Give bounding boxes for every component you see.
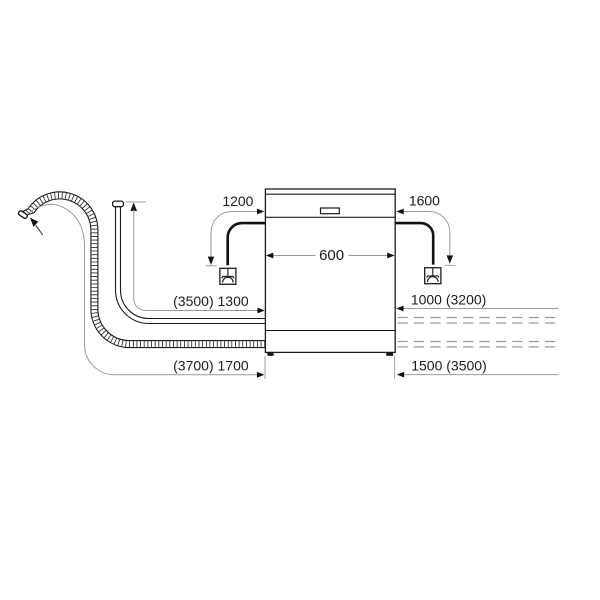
svg-text:600: 600 bbox=[319, 247, 344, 264]
svg-text:1500 (3500): 1500 (3500) bbox=[411, 357, 487, 373]
svg-text:(3500) 1300: (3500) 1300 bbox=[173, 293, 249, 309]
svg-text:1200: 1200 bbox=[222, 193, 253, 209]
svg-text:(3700) 1700: (3700) 1700 bbox=[173, 357, 249, 373]
svg-text:1000 (3200): 1000 (3200) bbox=[411, 292, 487, 308]
svg-text:1600: 1600 bbox=[409, 193, 440, 209]
